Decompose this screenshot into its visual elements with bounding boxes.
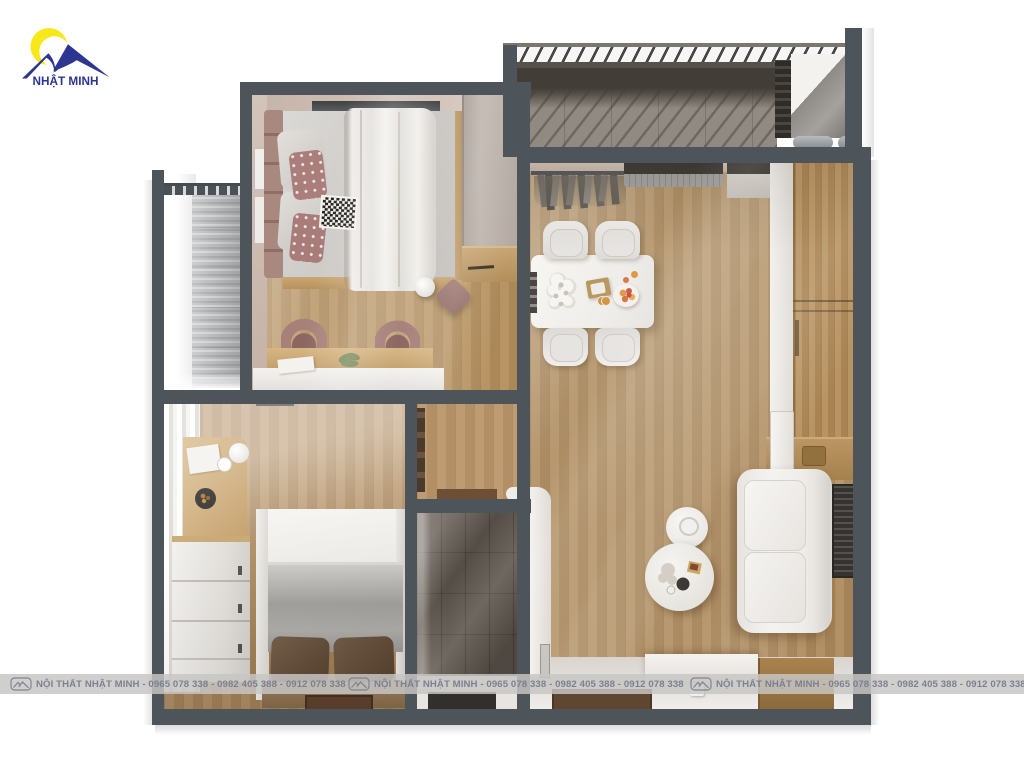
svg-text:NHẬT MINH: NHẬT MINH	[33, 73, 99, 88]
